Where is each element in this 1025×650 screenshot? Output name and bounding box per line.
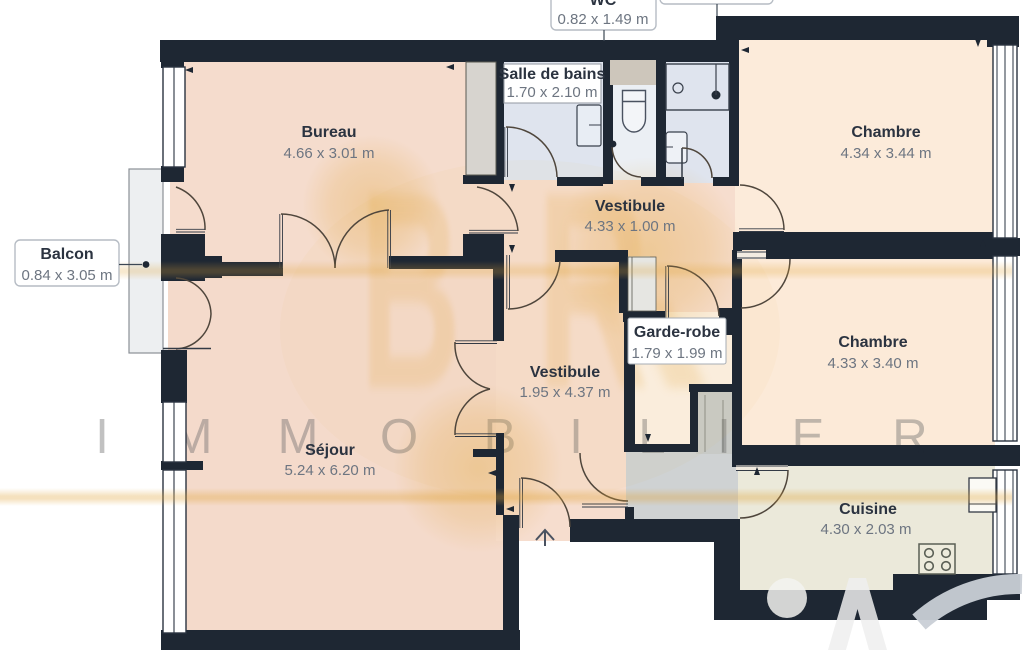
svg-text:1.70 x 2.10 m: 1.70 x 2.10 m	[507, 84, 598, 101]
svg-text:WC: WC	[590, 0, 617, 9]
svg-text:B: B	[360, 134, 461, 446]
svg-text:Vestibule: Vestibule	[530, 364, 600, 381]
svg-text:Salle de bains: Salle de bains	[499, 66, 606, 83]
svg-text:Vestibule: Vestibule	[595, 198, 665, 215]
svg-text:4.33 x 1.00 m: 4.33 x 1.00 m	[585, 218, 676, 235]
svg-text:4.30 x 2.03 m: 4.30 x 2.03 m	[821, 521, 912, 538]
svg-text:1.95 x 4.37 m: 1.95 x 4.37 m	[520, 384, 611, 401]
svg-text:4.34 x 3.44 m: 4.34 x 3.44 m	[841, 145, 932, 162]
svg-text:Chambre: Chambre	[851, 124, 920, 141]
svg-text:5.24 x 6.20 m: 5.24 x 6.20 m	[285, 462, 376, 479]
svg-text:I: I	[95, 410, 109, 464]
svg-text:Chambre: Chambre	[838, 334, 907, 351]
svg-text:Balcon: Balcon	[40, 246, 93, 263]
svg-text:Séjour: Séjour	[305, 442, 355, 459]
svg-text:0.84 x 3.05 m: 0.84 x 3.05 m	[22, 267, 113, 284]
svg-text:Cuisine: Cuisine	[839, 501, 897, 518]
svg-text:4.66 x 3.01 m: 4.66 x 3.01 m	[284, 145, 375, 162]
svg-text:Garde-robe: Garde-robe	[634, 324, 720, 341]
svg-text:Bureau: Bureau	[301, 124, 356, 141]
svg-text:1.79 x 1.99 m: 1.79 x 1.99 m	[632, 345, 723, 362]
svg-text:0.82 x 1.49 m: 0.82 x 1.49 m	[558, 11, 649, 28]
svg-text:4.33 x 3.40 m: 4.33 x 3.40 m	[828, 355, 919, 372]
